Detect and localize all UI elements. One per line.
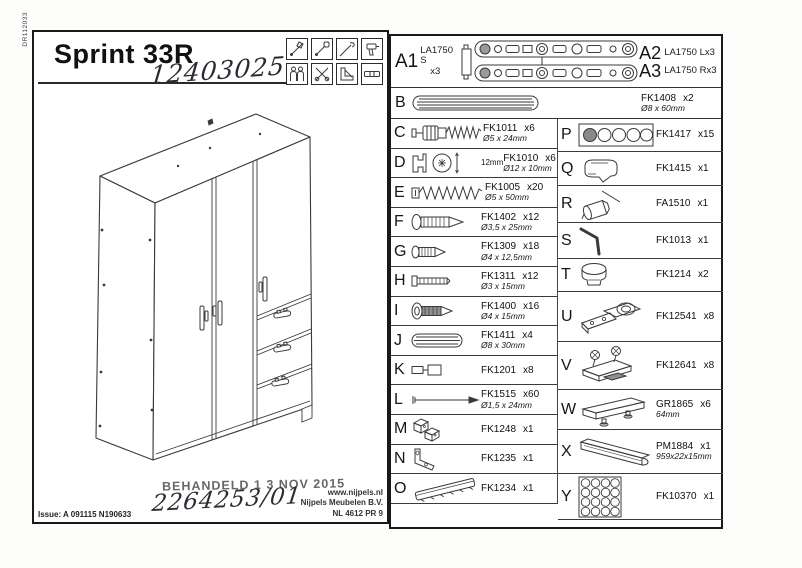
part-dim: Ø4 x 15mm [481, 312, 554, 322]
drawer-slides-icon [460, 40, 639, 84]
part-qty: x1 [698, 235, 709, 246]
part-code: FK1201 [481, 365, 516, 376]
try-square-icon [336, 63, 358, 85]
part-code: FK10370 [656, 491, 697, 502]
part-qty: x8 [704, 311, 715, 322]
part-qty: x1 [697, 198, 708, 209]
part-dim: Ø5 x 24mm [483, 134, 556, 144]
part-dim: Ø8 x 60mm [641, 104, 705, 114]
part-qty: x2 [698, 269, 709, 280]
part-code: FK12641 [656, 360, 697, 371]
part-code: FA1510 [656, 198, 690, 209]
dowel-icon [410, 333, 481, 348]
part-id: S [561, 232, 577, 250]
nail-icon [410, 394, 481, 406]
issue-code: Issue: A 091115 N190633 [38, 510, 131, 519]
hinge-icon [577, 297, 656, 337]
part-qty: x1 [704, 491, 715, 502]
part-dim: Ø3 x 15mm [481, 282, 554, 292]
part-row-h: H FK1311x12Ø3 x 15mm [391, 267, 557, 297]
parts-columns: C FK1011x6Ø5 x 24mm D 12mm FK1010x6Ø12 x… [391, 119, 721, 527]
part-id: A2 [639, 44, 661, 62]
part-id: T [561, 266, 577, 284]
screw-icon [410, 213, 481, 231]
part-code: FK1417 [656, 129, 691, 140]
part-row-a: A1 LA1750 S x3 A2 LA1750 Lx3 A3 LA1750 R… [391, 36, 721, 88]
part-qty: x1 [523, 483, 534, 494]
short-screw-icon [410, 244, 481, 260]
cam-lock-dim-label: 12mm [481, 158, 503, 167]
part-row-l: L FK1515x60Ø1,5 x 24mm [391, 385, 557, 415]
part-row-n: N FK1235x1 [391, 445, 557, 475]
part-qty: x8 [523, 365, 534, 376]
parts-column-left: C FK1011x6Ø5 x 24mm D 12mm FK1010x6Ø12 x… [391, 119, 558, 504]
part-qty: x1 [523, 424, 534, 435]
cam-lock-icon: 12mm [410, 151, 503, 175]
part-row-d: D 12mm FK1010x6Ø12 x 10mm [391, 149, 557, 179]
part-qty: x6 [700, 399, 711, 410]
part-row-c: C FK1011x6Ø5 x 24mm [391, 119, 557, 149]
part-code: LA1750 S x3 [420, 46, 457, 77]
part-code: FK1235 [481, 453, 516, 464]
part-id: K [394, 361, 410, 379]
part-id: J [394, 332, 410, 350]
part-code: FK1248 [481, 424, 516, 435]
plastic-blocks-icon [410, 416, 481, 442]
part-id: F [394, 213, 410, 231]
part-row-g: G FK1309x18Ø4 x 12,5mm [391, 237, 557, 267]
part-id: P [561, 126, 577, 144]
parts-column-right: P FK1417x15 Q FK1415x1 R FA1510x1 [558, 119, 723, 527]
part-id: A3 [639, 62, 661, 80]
part-id: G [394, 243, 410, 261]
company-code: NL 4612 PR 9 [301, 509, 383, 519]
part-id: O [394, 480, 410, 498]
part-id: Y [561, 488, 577, 506]
part-qty: x18 [523, 241, 539, 252]
connector-icon [410, 363, 481, 377]
part-row-y: Y FK10370x1 [558, 474, 723, 520]
part-id: V [561, 357, 577, 375]
part-qty: x1 [698, 163, 709, 174]
part-code: FK1408 [641, 93, 676, 104]
part-id: N [394, 450, 410, 468]
toothed-strip-icon [410, 476, 481, 502]
drawing-panel: Sprint 33R 12403025 [32, 30, 389, 524]
part-qty: x1 [523, 453, 534, 464]
part-code: FK1214 [656, 269, 691, 280]
part-code: FK1415 [656, 163, 691, 174]
knob-icon [577, 261, 656, 289]
profile-bar-icon [577, 434, 656, 470]
part-row-x: X PM1884x1959x22x15mm [558, 430, 723, 474]
part-row-o: O FK1234x1 [391, 474, 557, 504]
wardrobe-drawing [60, 110, 368, 472]
part-id: A1 [395, 51, 418, 73]
part-code: FK1400 [481, 301, 516, 312]
part-qty: x20 [527, 182, 543, 193]
hinge-plate-icon [577, 346, 656, 386]
part-row-f: F FK1402x12Ø3,5 x 25mm [391, 208, 557, 238]
part-code: LA1750 Rx3 [664, 66, 716, 76]
part-code: FK1515 [481, 389, 516, 400]
part-id: L [394, 391, 410, 409]
part-row-s: S FK1013x1 [558, 223, 723, 259]
part-qty: x60 [523, 389, 539, 400]
document-code: DR112033 [22, 12, 29, 47]
part-id: C [394, 124, 410, 142]
part-code: FK1234 [481, 483, 516, 494]
sticker-sheet-icon [577, 476, 656, 518]
hammer-icon [286, 38, 308, 60]
part-row-e: E FK1005x20Ø5 x 50mm [391, 178, 557, 208]
part-row-k: K FK1201x8 [391, 356, 557, 386]
handle-icon [577, 393, 656, 427]
part-id: M [394, 420, 410, 438]
part-id: X [561, 443, 577, 461]
part-dim: Ø1,5 x 24mm [481, 401, 554, 411]
part-row-u: U FK12541x8 [558, 292, 723, 342]
part-code-text: LA1750 S [420, 45, 453, 66]
part-row-b: B FK1408x2 Ø8 x 60mm [391, 88, 721, 119]
part-id: E [394, 184, 410, 202]
awl-icon [336, 38, 358, 60]
part-dim: Ø3,5 x 25mm [481, 223, 554, 233]
part-dim: 959x22x15mm [656, 452, 720, 462]
drill-icon [361, 38, 383, 60]
spirit-level-icon [361, 63, 383, 85]
part-row-j: J FK1411x4Ø8 x 30mm [391, 326, 557, 356]
part-row-m: M FK1248x1 [391, 415, 557, 445]
part-code: LA1750 Lx3 [664, 48, 715, 58]
allen-key-icon [577, 225, 656, 257]
screwdriver-icon [311, 38, 333, 60]
glue-tube-icon [577, 188, 656, 220]
part-qty: x8 [704, 360, 715, 371]
part-info: FK1408x2 Ø8 x 60mm [641, 93, 705, 114]
part-code: FK1013 [656, 235, 691, 246]
part-row-t: T FK1214x2 [558, 259, 723, 292]
part-id: Q [561, 160, 577, 178]
part-id: H [394, 272, 410, 290]
tool-icon-grid [286, 38, 383, 85]
part-qty: x2 [683, 93, 694, 104]
part-dim: Ø8 x 30mm [481, 341, 554, 351]
part-row-q: Q FK1415x1 [558, 152, 723, 186]
part-qty: x3 [430, 66, 440, 77]
part-variants: A2 LA1750 Lx3 A3 LA1750 Rx3 [639, 44, 717, 80]
company-name: Nijpels Meubelen B.V. [301, 498, 383, 508]
part-id: B [395, 94, 411, 112]
part-row-v: V FK12641x8 [558, 342, 723, 390]
part-id: I [394, 302, 410, 320]
part-qty: x6 [545, 153, 556, 164]
part-id: W [561, 401, 577, 419]
washer-screw-icon [410, 302, 481, 320]
part-id: D [394, 154, 410, 172]
cam-bolt-icon [410, 123, 483, 143]
part-code: FK1010 [503, 153, 538, 164]
part-id: R [561, 195, 577, 213]
part-row-w: W GR1865x664mm [558, 390, 723, 430]
part-row-i: I FK1400x16Ø4 x 15mm [391, 297, 557, 327]
part-dim: 64mm [656, 410, 720, 420]
plastic-fitting-icon [577, 154, 656, 184]
pliers-icon [311, 63, 333, 85]
part-qty: x16 [523, 301, 539, 312]
part-id: U [561, 308, 577, 326]
part-row-p: P FK1417x15 [558, 119, 723, 152]
angle-bracket-icon [410, 447, 481, 471]
company-block: www.nijpels.nl Nijpels Meubelen B.V. NL … [301, 488, 383, 519]
cover-caps-icon [577, 123, 656, 147]
part-row-r: R FA1510x1 [558, 186, 723, 223]
company-website: www.nijpels.nl [301, 488, 383, 498]
parts-list-table: A1 LA1750 S x3 A2 LA1750 Lx3 A3 LA1750 R… [389, 34, 723, 529]
large-dowel-icon [411, 94, 540, 112]
straight-screw-icon [410, 274, 481, 288]
long-screw-icon [410, 184, 485, 202]
part-code: FK1309 [481, 241, 516, 252]
part-dim: Ø4 x 12,5mm [481, 253, 554, 263]
part-qty: x15 [698, 129, 714, 140]
two-person-icon [286, 63, 308, 85]
part-code: FK12541 [656, 311, 697, 322]
part-dim: Ø5 x 50mm [485, 193, 558, 203]
